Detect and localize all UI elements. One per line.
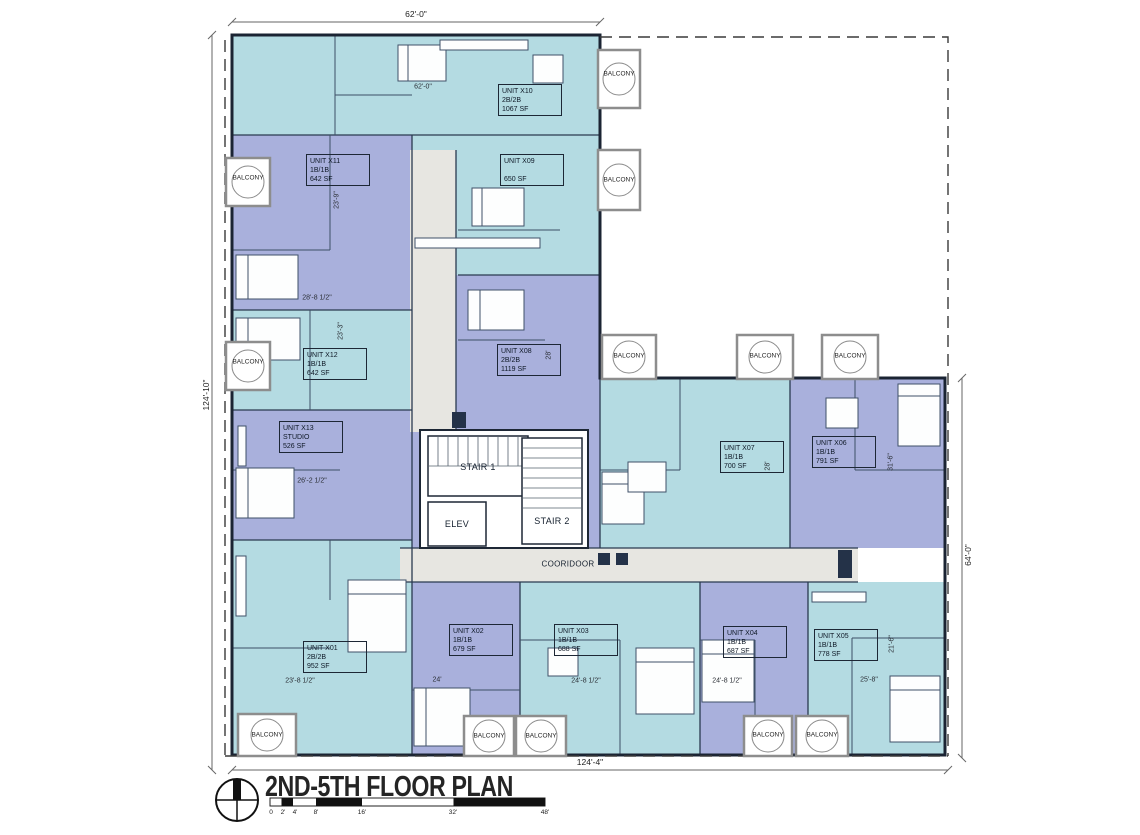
unit-area: 952 SF — [307, 662, 363, 671]
unit-config: 1B/1B — [307, 360, 363, 369]
page-title: 2ND-5TH FLOOR PLAN — [265, 771, 513, 804]
unit-config: 1B/1B — [818, 641, 874, 650]
balcony-label: BALCONY — [232, 175, 263, 182]
unit-config: 1B/1B — [453, 636, 509, 645]
dim-interior: 28'-8 1/2" — [302, 295, 332, 302]
unit-config: 1B/1B — [727, 638, 783, 647]
unit-area: 688 SF — [558, 645, 614, 654]
unit-area: 679 SF — [453, 645, 509, 654]
unit-area: 791 SF — [816, 457, 872, 466]
balcony-label: BALCONY — [232, 359, 263, 366]
scale-label: 8' — [314, 809, 319, 816]
unit-label-x01: UNIT X01 2B/2B 952 SF — [303, 641, 367, 673]
balcony-label: BALCONY — [806, 732, 837, 739]
unit-area: 642 SF — [307, 369, 363, 378]
dim-right: 64'-0" — [963, 544, 973, 566]
scale-label: 4' — [293, 809, 298, 816]
unit-config: 1B/1B — [724, 453, 780, 462]
scale-label: 48' — [541, 809, 549, 816]
unit-name: UNIT X06 — [816, 439, 872, 448]
unit-config: 1B/1B — [816, 448, 872, 457]
unit-label-x13: UNIT X13 STUDIO 526 SF — [279, 421, 343, 453]
dim-interior: 24'-8 1/2" — [571, 678, 601, 685]
balcony-label: BALCONY — [525, 733, 556, 740]
unit-area: 650 SF — [504, 175, 560, 184]
unit-name: UNIT X07 — [724, 444, 780, 453]
unit-label-x06: UNIT X06 1B/1B 791 SF — [812, 436, 876, 468]
corridor-label: COORIDOOR — [542, 560, 595, 569]
balcony-label: BALCONY — [613, 353, 644, 360]
unit-name: UNIT X10 — [502, 87, 558, 96]
unit-label-x04: UNIT X04 1B/1B 687 SF — [723, 626, 787, 658]
unit-label-x03: UNIT X03 1B/1B 688 SF — [554, 624, 618, 656]
stair1-label: STAIR 1 — [460, 462, 495, 472]
unit-name: UNIT X05 — [818, 632, 874, 641]
unit-label-x02: UNIT X02 1B/1B 679 SF — [449, 624, 513, 656]
dim-interior: 28' — [546, 350, 553, 359]
balcony-label: BALCONY — [473, 733, 504, 740]
dim-interior: 24' — [432, 677, 441, 684]
dim-interior: 26'-2 1/2" — [297, 478, 327, 485]
unit-label-x05: UNIT X05 1B/1B 778 SF — [814, 629, 878, 661]
unit-label-x12: UNIT X12 1B/1B 642 SF — [303, 348, 367, 380]
unit-name: UNIT X12 — [307, 351, 363, 360]
scale-label: 16' — [358, 809, 366, 816]
unit-name: UNIT X09 — [504, 157, 560, 166]
dim-interior: 31'-6" — [888, 453, 895, 471]
elevator-label: ELEV — [445, 519, 469, 529]
unit-name: UNIT X04 — [727, 629, 783, 638]
unit-config: 1B/1B — [310, 166, 366, 175]
balcony-label: BALCONY — [603, 71, 634, 78]
floor-plan-sheet: UNIT X10 2B/2B 1067 SF UNIT X11 1B/1B 64… — [0, 0, 1140, 835]
scale-label: 0 — [269, 809, 273, 816]
stair-core — [420, 430, 588, 548]
unit-label-x11: UNIT X11 1B/1B 642 SF — [306, 154, 370, 186]
balcony-label: BALCONY — [834, 353, 865, 360]
dim-interior: 23'-8 1/2" — [285, 678, 315, 685]
unit-area: 642 SF — [310, 175, 366, 184]
dim-bottom: 124'-4" — [577, 757, 603, 767]
unit-label-x10: UNIT X10 2B/2B 1067 SF — [498, 84, 562, 116]
unit-config — [504, 166, 560, 175]
north-arrow-icon — [216, 779, 258, 821]
unit-config: 2B/2B — [307, 653, 363, 662]
unit-name: UNIT X11 — [310, 157, 366, 166]
unit-config: 1B/1B — [558, 636, 614, 645]
balcony-label: BALCONY — [251, 732, 282, 739]
unit-config: STUDIO — [283, 433, 339, 442]
unit-area: 1067 SF — [502, 105, 558, 114]
dim-interior: 28' — [765, 461, 772, 470]
dim-top: 62'-0" — [405, 9, 427, 19]
unit-label-x09: UNIT X09 650 SF — [500, 154, 564, 186]
dim-interior: 24'-8 1/2" — [712, 678, 742, 685]
stair2-label: STAIR 2 — [534, 516, 569, 526]
scale-label: 32' — [449, 809, 457, 816]
unit-name: UNIT X01 — [307, 644, 363, 653]
dim-interior: 25'-8" — [860, 677, 878, 684]
dim-interior: 23'-3" — [338, 322, 345, 340]
balcony-label: BALCONY — [749, 353, 780, 360]
unit-name: UNIT X13 — [283, 424, 339, 433]
dim-left: 124'-10" — [201, 379, 211, 410]
unit-config: 2B/2B — [502, 96, 558, 105]
unit-area: 700 SF — [724, 462, 780, 471]
unit-name: UNIT X02 — [453, 627, 509, 636]
unit-name: UNIT X03 — [558, 627, 614, 636]
unit-area: 687 SF — [727, 647, 783, 656]
scale-label: 2' — [281, 809, 286, 816]
unit-area: 1119 SF — [501, 365, 557, 374]
dim-interior: 23'-9" — [334, 191, 341, 209]
balcony-label: BALCONY — [752, 732, 783, 739]
unit-area: 526 SF — [283, 442, 339, 451]
dim-interior: 62'-0" — [414, 84, 432, 91]
dim-interior: 21'-6" — [889, 635, 896, 653]
unit-label-x07: UNIT X07 1B/1B 700 SF — [720, 441, 784, 473]
unit-label-x08: UNIT X08 2B/2B 1119 SF — [497, 344, 561, 376]
unit-area: 778 SF — [818, 650, 874, 659]
balcony-label: BALCONY — [603, 177, 634, 184]
floor-plan-drawing — [0, 0, 1140, 835]
